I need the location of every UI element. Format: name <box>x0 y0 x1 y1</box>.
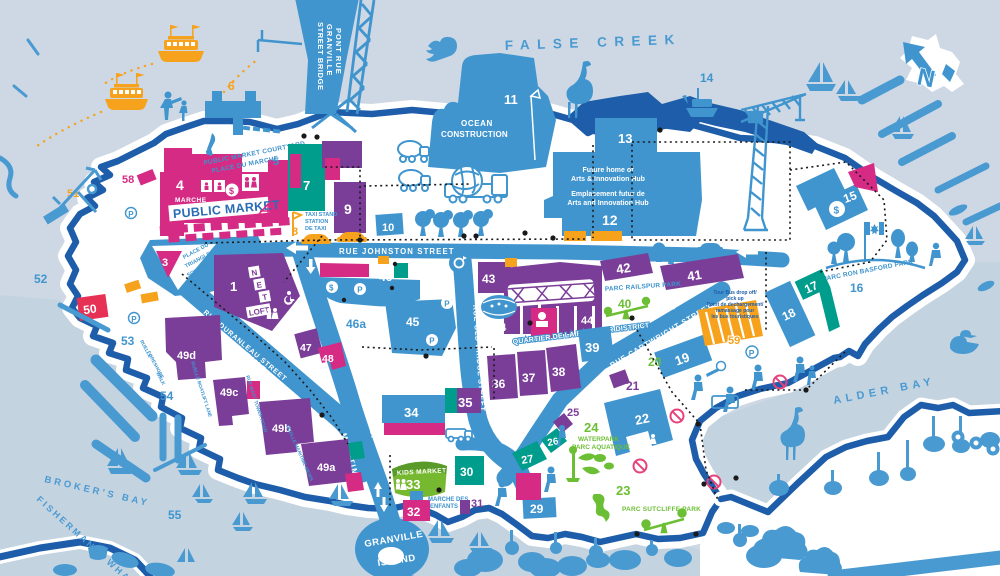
svg-text:13: 13 <box>618 131 632 146</box>
svg-text:7: 7 <box>303 178 310 193</box>
svg-text:ENFANTS: ENFANTS <box>430 504 458 510</box>
svg-text:STREET BRIDGE: STREET BRIDGE <box>316 22 325 91</box>
svg-text:24: 24 <box>584 420 599 435</box>
svg-text:22: 22 <box>634 410 651 428</box>
svg-text:31: 31 <box>471 498 483 510</box>
svg-text:16: 16 <box>850 281 864 295</box>
svg-text:30: 30 <box>460 465 474 479</box>
svg-text:29: 29 <box>530 502 544 516</box>
svg-text:33: 33 <box>406 477 420 492</box>
svg-text:25: 25 <box>567 407 579 419</box>
svg-text:59: 59 <box>728 335 740 347</box>
svg-text:P: P <box>128 210 134 219</box>
svg-text:11: 11 <box>504 92 518 107</box>
svg-text:58: 58 <box>122 174 134 186</box>
svg-text:32: 32 <box>407 505 421 519</box>
svg-text:DE TAXI: DE TAXI <box>305 226 327 232</box>
svg-text:44: 44 <box>581 315 594 327</box>
svg-text:$: $ <box>834 206 840 217</box>
svg-text:47: 47 <box>300 342 312 354</box>
svg-text:6: 6 <box>228 79 235 93</box>
svg-text:OCEAN: OCEAN <box>461 119 493 128</box>
svg-text:P: P <box>429 337 435 346</box>
svg-text:42: 42 <box>615 260 632 277</box>
svg-text:P: P <box>357 286 363 295</box>
svg-text:14: 14 <box>700 71 714 85</box>
svg-text:CONSTRUCTION: CONSTRUCTION <box>441 130 508 139</box>
svg-text:37: 37 <box>522 371 536 385</box>
svg-text:Arts and Innovation Hub: Arts and Innovation Hub <box>567 200 648 207</box>
svg-text:10: 10 <box>382 222 394 234</box>
svg-text:GRANVILLE: GRANVILLE <box>325 24 334 76</box>
svg-text:35: 35 <box>458 395 472 410</box>
svg-text:49a: 49a <box>317 462 336 474</box>
svg-text:36: 36 <box>492 377 506 391</box>
svg-text:1: 1 <box>230 279 237 294</box>
svg-text:P: P <box>444 300 450 309</box>
svg-text:52: 52 <box>34 272 48 286</box>
svg-text:5: 5 <box>273 156 279 168</box>
svg-text:12: 12 <box>602 212 618 228</box>
svg-text:PONT RUE: PONT RUE <box>334 28 343 75</box>
svg-text:49d: 49d <box>177 350 196 362</box>
svg-text:4: 4 <box>176 177 184 193</box>
svg-text:38: 38 <box>552 365 566 379</box>
svg-text:21: 21 <box>626 379 640 393</box>
svg-text:TAXI STAND: TAXI STAND <box>305 212 337 218</box>
svg-text:39: 39 <box>585 340 599 355</box>
svg-text:34: 34 <box>404 405 419 420</box>
svg-text:53: 53 <box>121 334 135 348</box>
svg-text:46a: 46a <box>346 317 366 331</box>
svg-text:Emplacement futur de: Emplacement futur de <box>571 191 645 198</box>
svg-text:STATION: STATION <box>305 219 328 225</box>
svg-text:46: 46 <box>379 270 393 284</box>
svg-text:Arts & Innovation Hub: Arts & Innovation Hub <box>571 176 645 183</box>
svg-text:3: 3 <box>162 257 168 269</box>
svg-text:Future home of: Future home of <box>583 167 635 174</box>
svg-text:P: P <box>749 348 755 358</box>
svg-text:40: 40 <box>618 297 632 311</box>
svg-text:45: 45 <box>406 315 420 329</box>
svg-text:PARC AQUATIQUE: PARC AQUATIQUE <box>572 444 631 451</box>
svg-text:RUE JOHNSTON STREET: RUE JOHNSTON STREET <box>339 247 455 256</box>
svg-text:P: P <box>131 315 137 324</box>
svg-text:9: 9 <box>344 201 352 217</box>
svg-text:48: 48 <box>322 353 334 365</box>
svg-text:49c: 49c <box>220 387 238 399</box>
svg-text:43: 43 <box>482 272 496 286</box>
svg-text:20: 20 <box>648 355 662 369</box>
svg-text:54: 54 <box>160 389 174 403</box>
svg-text:8: 8 <box>292 226 298 238</box>
svg-text:50: 50 <box>82 301 97 317</box>
svg-text:$: $ <box>329 284 334 293</box>
svg-text:$: $ <box>229 186 234 196</box>
svg-text:55: 55 <box>168 508 182 522</box>
svg-text:les bus touristiques: les bus touristiques <box>711 314 758 320</box>
svg-text:23: 23 <box>616 483 630 498</box>
svg-text:44: 44 <box>494 322 507 334</box>
svg-text:27: 27 <box>520 453 534 467</box>
svg-text:WATERPARK: WATERPARK <box>578 436 619 443</box>
svg-text:PARC SUTCLIFFE PARK: PARC SUTCLIFFE PARK <box>622 506 701 513</box>
svg-text:41: 41 <box>686 267 703 284</box>
